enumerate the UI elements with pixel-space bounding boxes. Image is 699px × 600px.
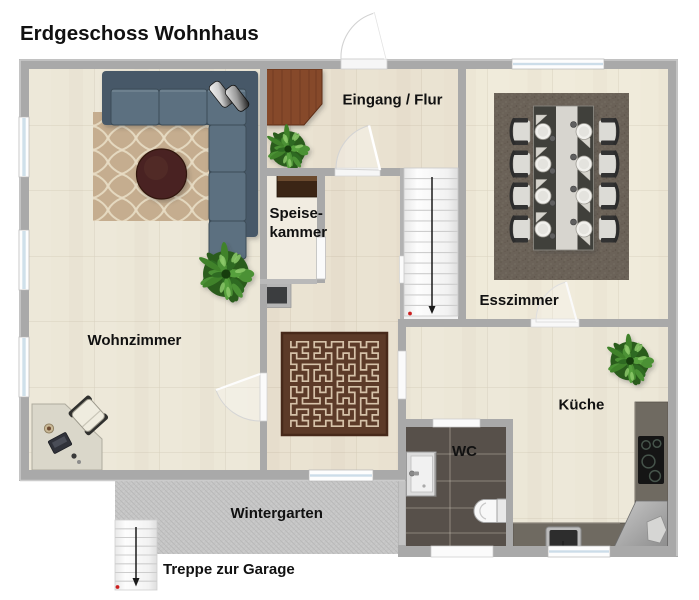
svg-text:Erdgeschoss Wohnhaus: Erdgeschoss Wohnhaus — [20, 22, 259, 45]
svg-text:WC: WC — [452, 443, 477, 460]
svg-text:Treppe zur Garage: Treppe zur Garage — [163, 561, 295, 578]
svg-text:Wohnzimmer: Wohnzimmer — [88, 332, 182, 349]
svg-text:Esszimmer: Esszimmer — [480, 292, 559, 309]
svg-text:Küche: Küche — [559, 397, 605, 414]
svg-text:Speise-: Speise- — [270, 205, 323, 222]
svg-text:Eingang / Flur: Eingang / Flur — [343, 92, 443, 109]
svg-text:kammer: kammer — [270, 224, 328, 241]
svg-text:Wintergarten: Wintergarten — [231, 505, 323, 522]
